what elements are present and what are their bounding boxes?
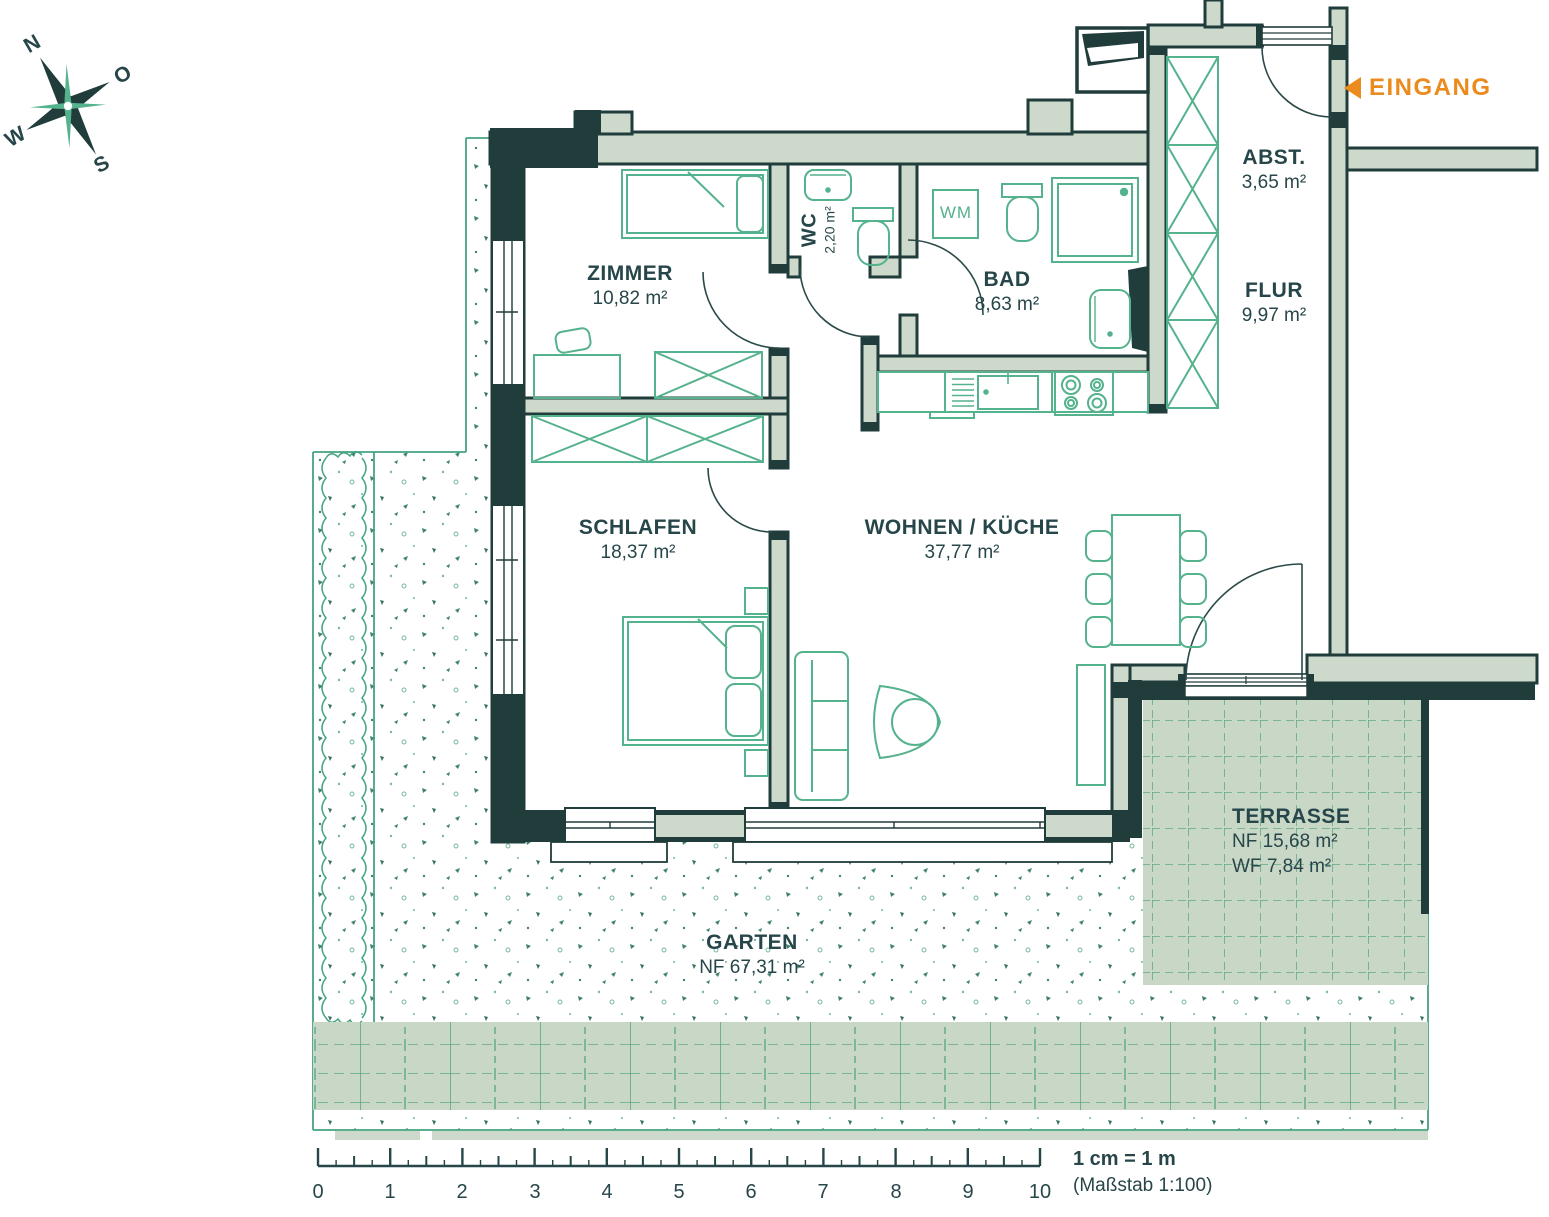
dining-table xyxy=(1086,515,1206,647)
dining-chair xyxy=(1180,531,1206,561)
wall-step-dark xyxy=(1112,682,1185,698)
dining-chair xyxy=(1086,531,1112,561)
wall-wc-east xyxy=(900,164,917,257)
room-area: 3,65 m² xyxy=(1242,171,1306,196)
scale-tick-label: 4 xyxy=(601,1181,612,1203)
garden-path-tiles xyxy=(313,1022,1428,1110)
entrance-text: EINGANG xyxy=(1369,74,1492,102)
scale-tick-label: 9 xyxy=(962,1181,973,1203)
counter-ledge xyxy=(930,412,974,418)
nightstand xyxy=(745,588,768,614)
room-area: 9,97 m² xyxy=(1242,304,1306,329)
wall-wc-south-l xyxy=(788,257,800,277)
room-area: 37,77 m² xyxy=(865,541,1060,566)
scale-tick-label: 10 xyxy=(1029,1181,1051,1203)
wall-kitchen-pier xyxy=(862,337,878,430)
dining-chair xyxy=(1180,574,1206,604)
room-area: 10,82 m² xyxy=(587,287,673,312)
door-arc-entrance xyxy=(1262,47,1332,117)
label-bad: BAD 8,63 m² xyxy=(975,266,1039,318)
floorplan-drawing: N O W S 0 1 2 3 4 5 6 7 8 9 10 xyxy=(0,0,1549,1217)
scale-legend-bold: 1 cm = 1 m xyxy=(1073,1146,1212,1173)
door-arc-schlafen xyxy=(708,468,772,532)
room-area: 2,20 m² xyxy=(822,206,839,253)
door-arc-terrace xyxy=(1186,564,1302,680)
wardrobe-zimmer xyxy=(655,352,762,398)
wall-schlafen-east-upper xyxy=(770,414,788,468)
wall-west-seg xyxy=(492,385,524,505)
shaft-box xyxy=(1077,28,1148,92)
washing-machine-label: WM xyxy=(940,203,972,223)
wall-step-dark xyxy=(1128,680,1142,838)
room-name: ABST. xyxy=(1242,144,1306,171)
label-flur: FLUR 9,97 m² xyxy=(1242,277,1306,329)
compass-n: N xyxy=(20,30,45,58)
wall-south-pier xyxy=(1045,815,1112,837)
door-arc-bad xyxy=(908,240,983,315)
wc-sink xyxy=(805,170,851,200)
wall-entry-stub xyxy=(1205,0,1222,27)
wall-bad-south xyxy=(862,356,1148,372)
floorplan-page: N O W S 0 1 2 3 4 5 6 7 8 9 10 ZIMMER 10… xyxy=(0,0,1549,1217)
room-name: FLUR xyxy=(1242,277,1306,304)
dining-chair xyxy=(1086,574,1112,604)
wardrobe-hall xyxy=(1167,57,1218,408)
scale-legend-sub: (Maßstab 1:100) xyxy=(1073,1173,1212,1199)
entrance-arrow-icon xyxy=(1344,77,1361,99)
scale-tick-label: 1 xyxy=(384,1181,395,1203)
wall-west-seg xyxy=(492,132,524,240)
dining-chair xyxy=(1086,617,1112,647)
room-area-nf: NF 15,68 m² xyxy=(1232,830,1350,855)
compass-o: O xyxy=(110,61,136,89)
compass-s: S xyxy=(90,151,114,178)
bed-double xyxy=(623,588,768,776)
label-terrasse: TERRASSE NF 15,68 m² WF 7,84 m² xyxy=(1232,803,1350,880)
room-name: GARTEN xyxy=(699,929,805,956)
scale-tick-label: 7 xyxy=(817,1181,828,1203)
window-sill xyxy=(733,842,1112,862)
room-area: 8,63 m² xyxy=(975,293,1039,318)
wall-wing-south xyxy=(1307,655,1537,683)
label-abst: ABST. 3,65 m² xyxy=(1242,144,1306,196)
room-name: WC xyxy=(798,206,822,253)
label-schlafen: SCHLAFEN 18,37 m² xyxy=(579,514,697,566)
garden-edge-strip xyxy=(335,1131,420,1140)
wall-zimmer-east-upper xyxy=(770,164,788,272)
room-name: SCHLAFEN xyxy=(579,514,697,541)
scale-tick-label: 2 xyxy=(456,1181,467,1203)
entrance-label: EINGANG xyxy=(1344,74,1492,102)
washbasin xyxy=(1090,290,1130,348)
room-name: BAD xyxy=(975,266,1039,293)
scale-tick-label: 3 xyxy=(529,1181,540,1203)
wall-pier-dark xyxy=(575,110,601,134)
wall-schlafen-east-lower xyxy=(770,532,788,810)
compass-w: W xyxy=(1,122,30,152)
wall-north-pier xyxy=(1028,100,1072,134)
label-wohnen: WOHNEN / KÜCHE 37,77 m² xyxy=(865,514,1060,566)
sideboard xyxy=(1077,665,1105,785)
scale-tick-label: 0 xyxy=(312,1181,323,1203)
garden-edge-strip xyxy=(432,1131,1428,1140)
window-schlafen-west xyxy=(492,505,524,695)
scale-tick-label: 6 xyxy=(745,1181,756,1203)
label-wc: WC 2,20 m² xyxy=(798,206,839,253)
room-area: NF 67,31 m² xyxy=(699,956,805,981)
desk-chair xyxy=(555,327,592,354)
scale-tick-label: 5 xyxy=(673,1181,684,1203)
label-garten: GARTEN NF 67,31 m² xyxy=(699,929,805,981)
garden-strip-west xyxy=(466,138,490,454)
scale-tick-label: 8 xyxy=(890,1181,901,1203)
shower xyxy=(1052,178,1138,262)
window-sill xyxy=(551,842,667,862)
room-name: TERRASSE xyxy=(1232,803,1350,830)
terrace-door-sill xyxy=(1185,686,1307,697)
terrace-right-wall xyxy=(1421,698,1429,914)
compass: N O W S xyxy=(0,0,169,210)
window-wohnen-south xyxy=(745,808,1045,842)
bed-single xyxy=(622,170,768,238)
kitchen-counter xyxy=(878,372,1148,418)
wall-corridor-east xyxy=(1330,8,1347,683)
door-arc-wc xyxy=(800,267,870,337)
scale-legend: 1 cm = 1 m (Maßstab 1:100) xyxy=(1073,1146,1212,1199)
room-name: WOHNEN / KÜCHE xyxy=(865,514,1060,541)
door-arc-zimmer xyxy=(703,272,779,348)
side-table xyxy=(892,699,938,745)
wall-south-pier xyxy=(655,815,745,837)
armchair xyxy=(874,686,940,758)
label-zimmer: ZIMMER 10,82 m² xyxy=(587,260,673,312)
entrance-threshold xyxy=(1262,27,1332,45)
scale-bar: 0 1 2 3 4 5 6 7 8 9 10 xyxy=(312,1148,1051,1203)
bad-toilet xyxy=(1002,184,1042,241)
wall-corridor-west xyxy=(1148,47,1166,412)
wardrobe-schlafen xyxy=(532,416,763,462)
room-area: 18,37 m² xyxy=(579,541,697,566)
nightstand xyxy=(745,750,768,776)
sofa xyxy=(795,652,848,800)
room-area-wf: WF 7,84 m² xyxy=(1232,855,1350,880)
wall-wing-north xyxy=(1347,148,1537,170)
desk xyxy=(534,355,620,398)
room-name: ZIMMER xyxy=(587,260,673,287)
wall-zimmer-schlafen xyxy=(524,398,788,414)
